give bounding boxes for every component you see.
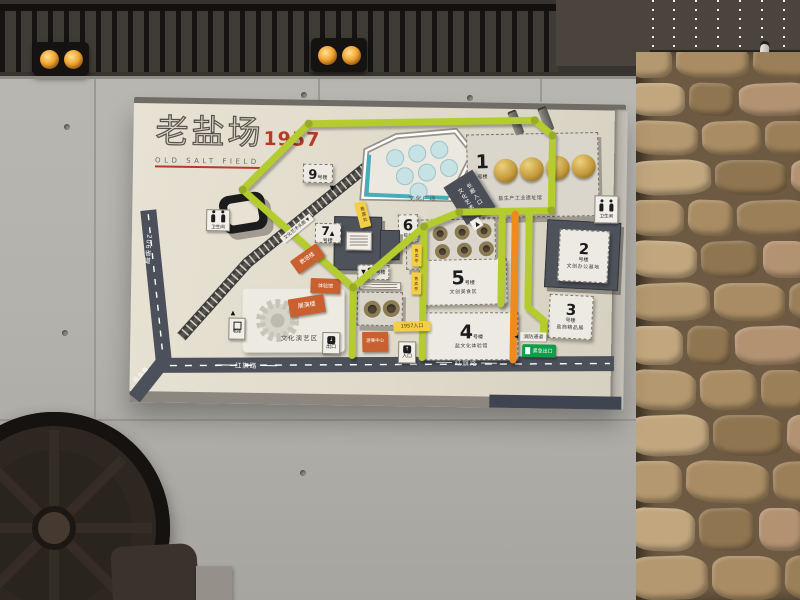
- stone: [636, 83, 685, 116]
- stone: [636, 414, 710, 458]
- stone: [676, 52, 749, 78]
- stone: [715, 160, 787, 195]
- form-tie-hole: [467, 95, 473, 101]
- stone: [687, 199, 733, 237]
- stone: [686, 325, 731, 366]
- stone: [636, 555, 709, 600]
- experience-hall-tag: 体验馆: [310, 278, 340, 294]
- direction-arrow: ▲: [231, 310, 236, 317]
- lamp-bulb-icon: [40, 50, 59, 69]
- stone: [786, 414, 800, 457]
- stone: [636, 52, 673, 79]
- floodlight-icon: [311, 38, 367, 72]
- ring-icon: [364, 301, 381, 318]
- green-pipe: [527, 214, 545, 334]
- building-1-desc: 盐生产工业遗址馆: [498, 193, 598, 202]
- string-lights-icon: [783, 0, 785, 60]
- wall-edge: [0, 76, 636, 79]
- road-provincial: [146, 210, 166, 362]
- building-2: 2 号楼 文创办公基地: [544, 219, 621, 291]
- building-7-wing: [380, 230, 400, 260]
- corridor-label: 文化艺术长廊 ▼: [280, 214, 314, 244]
- building-7-plaque: [346, 231, 372, 250]
- ring-icon: [454, 225, 469, 240]
- stone: [759, 508, 800, 551]
- entrance-arrow-icon: ↑: [403, 345, 411, 353]
- stone: [734, 325, 800, 367]
- wc-icon: [600, 199, 613, 215]
- title-year: 1957: [263, 130, 320, 150]
- toilet-sign-left: 卫生间: [206, 209, 230, 231]
- display-frame-inner: [227, 199, 260, 225]
- elevator-sign: 电梯: [228, 318, 245, 340]
- stone: [700, 240, 759, 279]
- wheel-hub: [32, 506, 76, 550]
- building-5-sign: 5号楼 文创美食区: [419, 258, 508, 306]
- stone: [790, 159, 800, 196]
- plaza-label: 文化广场: [408, 193, 436, 202]
- concrete-block: [196, 566, 232, 600]
- stone: [701, 120, 761, 156]
- stone: [636, 120, 699, 156]
- building-9-sign: 9号楼: [303, 164, 333, 183]
- building-3-sign: 3 号楼 盐商精品展: [548, 294, 594, 340]
- stone: [636, 461, 682, 503]
- fence-top-rail: [0, 4, 558, 11]
- building-4-sign: 4号楼 盐文化体验馆: [424, 312, 518, 360]
- ring-icon: [383, 300, 400, 317]
- exit-sign: ↓ 出口: [322, 332, 340, 354]
- lamp-bulb-icon: [64, 50, 83, 69]
- stone: [752, 52, 800, 79]
- strip-text-lines: [363, 284, 397, 289]
- plaza-teal-edge: [367, 155, 450, 198]
- emergency-exit-sign: 紧急出口: [522, 344, 556, 358]
- toilet-sign-right: 卫生间: [594, 195, 618, 223]
- ring-icon: [432, 226, 447, 241]
- lamp-bulb-icon: [342, 46, 361, 65]
- stone: [712, 556, 781, 600]
- floodlight-icon: [33, 42, 89, 76]
- lamp-bulb-icon: [318, 46, 337, 65]
- title-english: OLD SALT FIELD: [155, 156, 260, 169]
- wheel-spoke: [0, 523, 152, 533]
- chimney-icon: [508, 111, 525, 136]
- kiosk-tag: 售卖亭: [411, 272, 421, 294]
- board-title: 老盐场 1957 OLD SALT FIELD: [155, 114, 321, 170]
- stone: [713, 415, 783, 456]
- stone: [636, 282, 711, 323]
- building-7-sign: 7▲ 号楼: [315, 223, 341, 243]
- stone: [636, 200, 684, 236]
- concrete-seam: [540, 78, 542, 102]
- rusty-object: [110, 543, 200, 600]
- building-8-strip: [359, 282, 401, 291]
- road-label-platform: 站台路: [131, 364, 150, 383]
- form-tie-hole: [301, 92, 307, 98]
- entrance-sign: ↑ 入口: [398, 341, 416, 363]
- salt-dome-icon: [494, 159, 518, 183]
- stone: [714, 283, 785, 321]
- stone: [699, 369, 757, 411]
- road-label-provincial: 206省道: [141, 234, 155, 265]
- concrete-seam: [94, 78, 96, 418]
- ring-icon: [457, 243, 472, 258]
- stone: [636, 507, 696, 552]
- salt-dome-icon: [546, 156, 570, 180]
- stone: [772, 460, 800, 504]
- photo-scene: 老盐场 1957 OLD SALT FIELD 206省道 红旗路 红旗路 站台…: [0, 0, 800, 600]
- stone: [788, 282, 800, 322]
- stone: [636, 159, 712, 197]
- form-tie-hole: [300, 470, 306, 476]
- road-label-hongqi-1: 红旗路: [216, 359, 277, 370]
- form-tie-hole: [64, 124, 70, 130]
- kiosk-tag: 售卖亭: [411, 244, 421, 266]
- training-building-tag: 教培楼: [290, 243, 325, 274]
- performance-zone-label: 文化演艺区: [281, 332, 319, 342]
- map-board: 老盐场 1957 OLD SALT FIELD 206省道 红旗路 红旗路 站台…: [129, 102, 626, 410]
- stone: [698, 507, 755, 552]
- plaque-text-lines: [350, 235, 368, 246]
- entrance-1957-tag: 1957入口: [393, 321, 430, 332]
- form-tie-hole: [62, 330, 68, 336]
- stone-wall: [636, 52, 800, 600]
- exit-arrow-icon: ↓: [327, 336, 335, 344]
- runner-icon: [526, 347, 531, 354]
- stone: [763, 241, 800, 278]
- chimney-icon: [538, 108, 555, 133]
- direction-arrow: ▼: [330, 185, 335, 192]
- stone: [765, 121, 800, 155]
- building-1-sign: 1 号楼: [475, 153, 489, 180]
- building-8-sign: ▼8号楼: [357, 265, 389, 281]
- fire-lane-sign: ◀ 消防通道: [514, 332, 546, 341]
- stone: [636, 369, 697, 411]
- stone: [685, 460, 769, 505]
- board-frame-bottom-dark: [489, 395, 621, 410]
- building-6-sign: 6 号楼: [398, 214, 419, 242]
- visitor-center-tag: 游客中心: [362, 332, 388, 352]
- building-2-sign: 2 号楼 文创办公基地: [557, 229, 610, 283]
- stone: [738, 82, 800, 118]
- stone: [688, 82, 735, 117]
- string-lights-icon: [652, 0, 654, 58]
- wc-icon: [212, 209, 225, 225]
- title-chinese: 老盐场: [155, 114, 264, 149]
- stone: [761, 370, 800, 410]
- stone: [636, 240, 698, 279]
- stone: [736, 199, 800, 238]
- stone: [784, 555, 800, 600]
- salt-dome-icon: [520, 157, 544, 181]
- ring-icon: [435, 244, 450, 259]
- stone: [636, 326, 683, 365]
- salt-dome-icon: [572, 154, 596, 178]
- board-frame-top: [134, 97, 626, 111]
- ring-icon: [479, 241, 494, 256]
